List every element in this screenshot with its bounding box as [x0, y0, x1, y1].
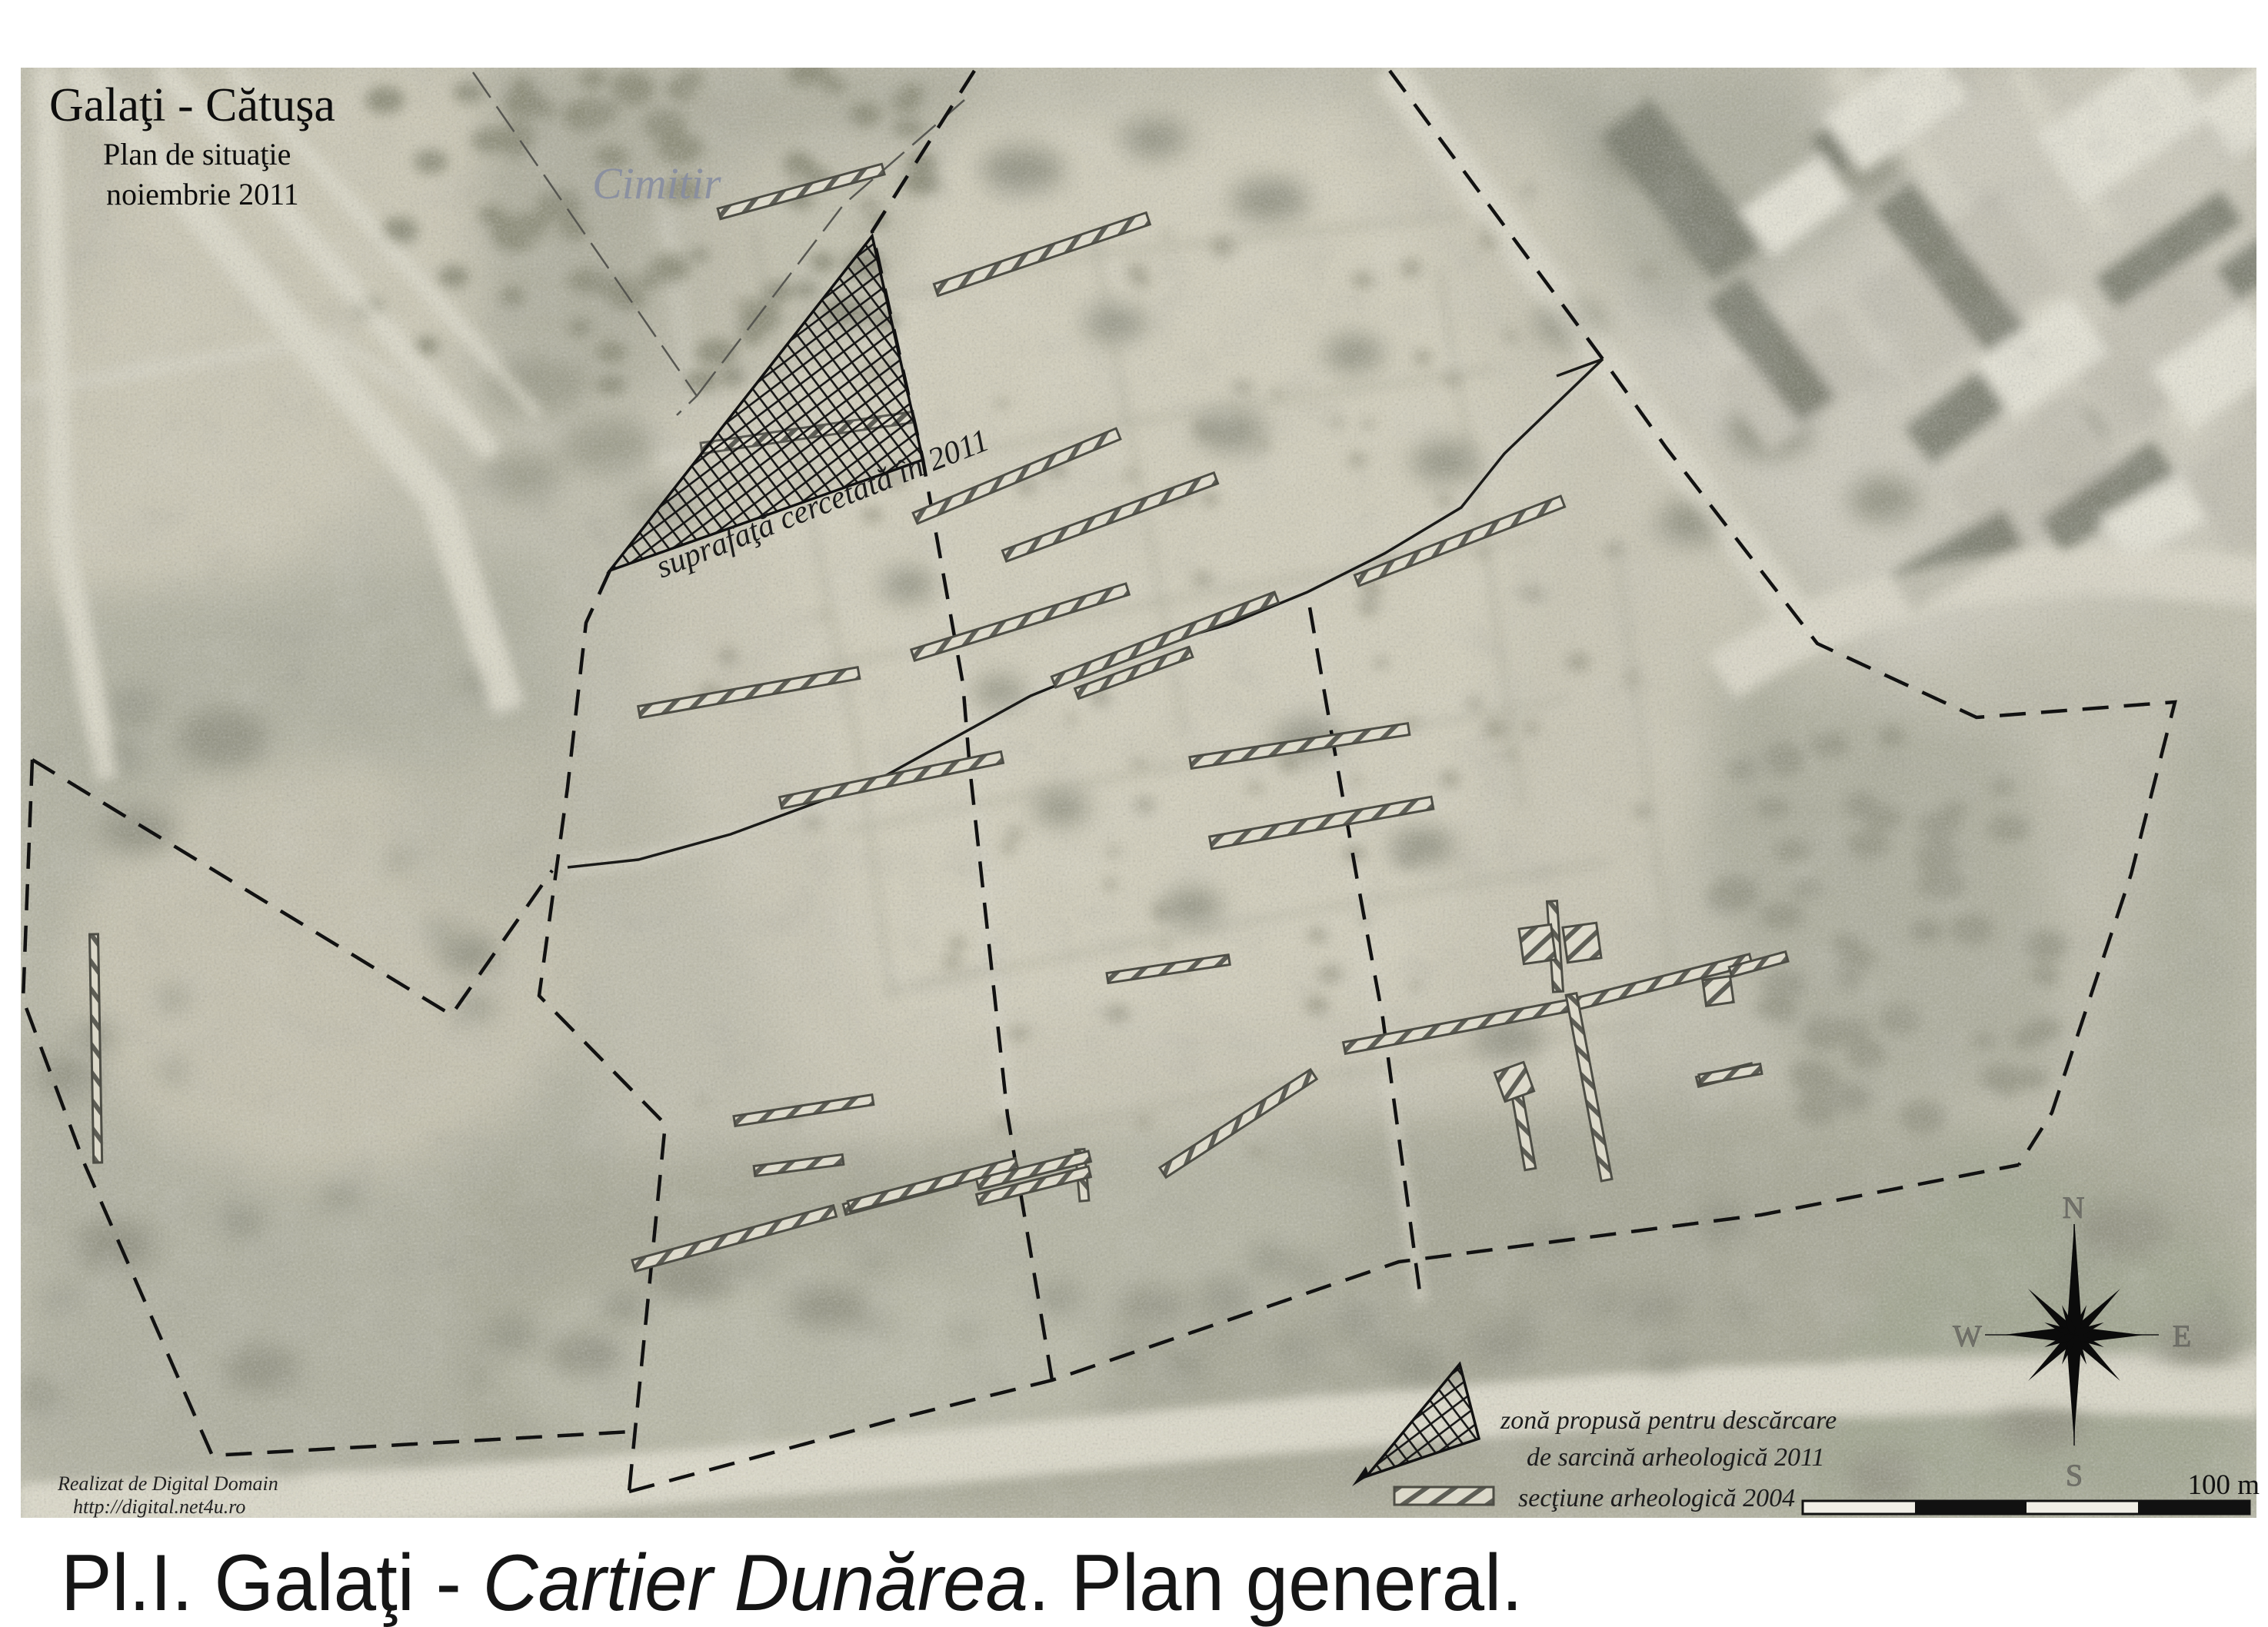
svg-text:Pl.I. Galaţi - Cartier Dunărea: Pl.I. Galaţi - Cartier Dunărea. Plan gen…: [61, 1539, 1523, 1627]
svg-text:Plan de situaţie: Plan de situaţie: [103, 137, 291, 171]
svg-text:N: N: [2063, 1190, 2085, 1225]
svg-text:S: S: [2066, 1458, 2083, 1492]
svg-text:E: E: [2173, 1319, 2191, 1353]
svg-text:Cimitir: Cimitir: [592, 158, 721, 208]
svg-text:http://digital.net4u.ro: http://digital.net4u.ro: [73, 1496, 245, 1518]
svg-text:noiembrie 2011: noiembrie 2011: [106, 177, 299, 211]
svg-text:Galaţi - Cătuşa: Galaţi - Cătuşa: [49, 79, 335, 131]
svg-text:100 m: 100 m: [2187, 1469, 2260, 1501]
svg-text:W: W: [1953, 1319, 1982, 1353]
svg-text:secţiune arheologică 2004: secţiune arheologică 2004: [1518, 1484, 1795, 1512]
svg-text:zonă propusă pentru descărcare: zonă propusă pentru descărcare: [1500, 1406, 1837, 1435]
svg-text:Realizat de Digital Domain: Realizat de Digital Domain: [57, 1472, 278, 1495]
svg-text:de sarcină arheologică 2011: de sarcină arheologică 2011: [1527, 1443, 1825, 1472]
